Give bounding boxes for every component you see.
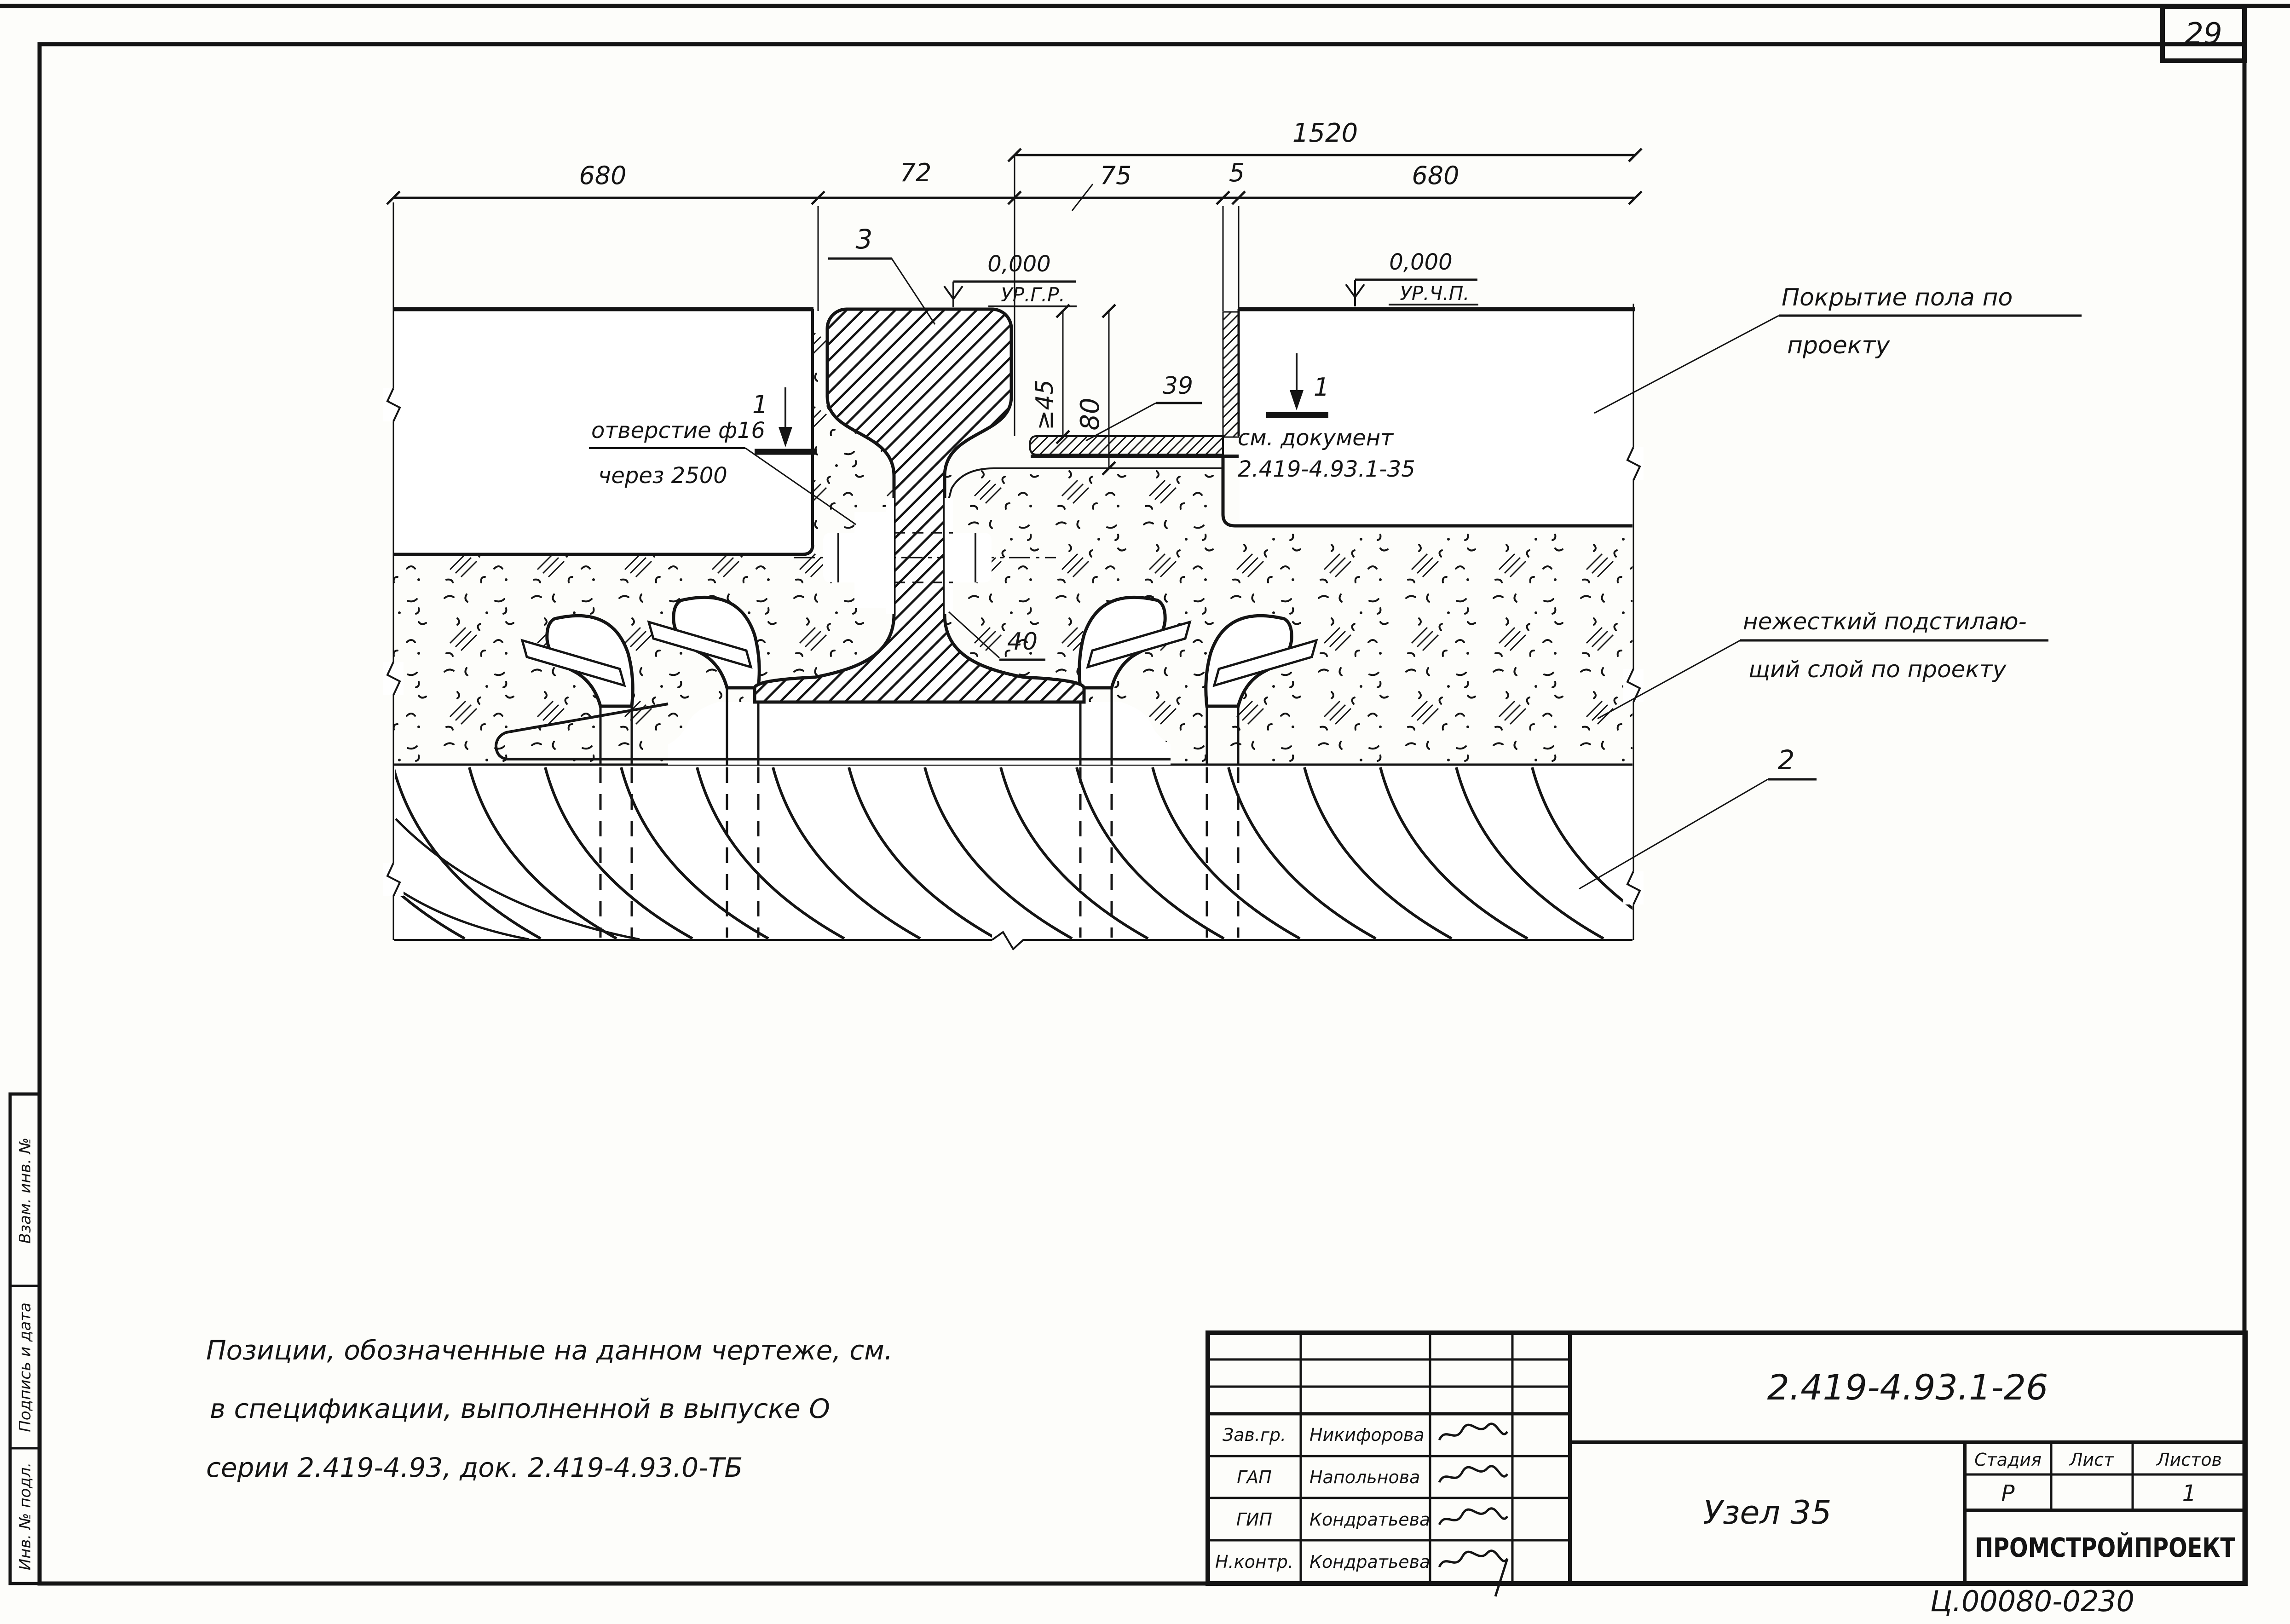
level-mark-floor: 0,000 УР.Ч.П. bbox=[1346, 249, 1478, 306]
level-label-right: УР.Ч.П. bbox=[1400, 282, 1469, 305]
note-line-2: в спецификации, выполненной в выпуске О bbox=[210, 1393, 830, 1424]
sheets-value: 1 bbox=[2182, 1480, 2197, 1506]
dim-72: 72 bbox=[900, 158, 932, 187]
floor-cover-text-2: проекту bbox=[1787, 332, 1891, 359]
name-nkontr: Кондратьева bbox=[1309, 1552, 1430, 1572]
role-nkontr: Н.контр. bbox=[1215, 1552, 1293, 1572]
footer-num: 30 bbox=[2098, 1584, 2134, 1618]
pos3-label: 3 bbox=[856, 224, 873, 255]
floor-cover-text-1: Покрытие пола по bbox=[1782, 284, 2013, 311]
angle-plate-39 bbox=[1030, 436, 1223, 455]
level-value-left: 0,000 bbox=[987, 251, 1050, 277]
bolt-washer bbox=[854, 512, 886, 608]
level-label-left: УР.Г.Р. bbox=[1001, 283, 1065, 306]
sheet-top-edge bbox=[0, 4, 2290, 8]
side-label-inv: Инв. № подл. bbox=[16, 1463, 35, 1571]
level-value-right: 0,000 bbox=[1389, 249, 1452, 275]
bolt-nut bbox=[953, 533, 992, 582]
role-zavgr: Зав.гр. bbox=[1223, 1425, 1286, 1445]
side-label-vzam: Взам. инв. № bbox=[16, 1138, 35, 1244]
node-title: Узел 35 bbox=[1703, 1494, 1831, 1532]
name-gip: Кондратьева bbox=[1309, 1509, 1430, 1530]
section-label: 1 bbox=[752, 390, 768, 419]
sheets-header: Листов bbox=[2156, 1450, 2222, 1470]
footer: Ц.00080-02 30 Формат А3 bbox=[1930, 1584, 2134, 1624]
footer-format: Формат А3 bbox=[1979, 1620, 2125, 1624]
drawing-sheet: 29 Взам. инв. № Подпись и дата Инв. № по… bbox=[0, 0, 2290, 1624]
section-label: 1 bbox=[1314, 373, 1329, 402]
callout-floor-cover: Покрытие пола по проекту bbox=[1594, 284, 2082, 413]
doc-text-2: 2.419-4.93.1-35 bbox=[1238, 456, 1415, 482]
name-zavgr: Никифорова bbox=[1309, 1425, 1425, 1445]
doc-number: 2.419-4.93.1-26 bbox=[1767, 1367, 2048, 1408]
note-block: Позиции, обозначенные на данном чертеже,… bbox=[206, 1335, 893, 1483]
dim-680-left: 680 bbox=[579, 161, 626, 190]
underlay-text-2: щий слой по проекту bbox=[1748, 656, 2007, 683]
sheet-header: Лист bbox=[2069, 1450, 2115, 1470]
org-name: ПРОМСТРОЙПРОЕКТ bbox=[1975, 1532, 2235, 1563]
gasket-plate-right bbox=[945, 498, 953, 614]
role-gap: ГАП bbox=[1237, 1467, 1272, 1487]
pos2-label: 2 bbox=[1778, 744, 1795, 776]
stage-value: Р bbox=[2002, 1480, 2015, 1506]
callout-underlay: нежесткий подстилаю- щий слой по проекту bbox=[1598, 608, 2048, 719]
dim-5: 5 bbox=[1229, 158, 1245, 187]
side-label-podpis: Подпись и дата bbox=[16, 1302, 35, 1432]
side-stamp-column: Взам. инв. № Подпись и дата Инв. № подл. bbox=[10, 1094, 40, 1584]
page-number: 29 bbox=[2185, 17, 2222, 51]
pos40-label: 40 bbox=[1007, 628, 1038, 656]
note-line-1: Позиции, обозначенные на данном чертеже,… bbox=[206, 1335, 893, 1366]
wood-sleeper bbox=[317, 765, 1679, 940]
stage-header: Стадия bbox=[1974, 1450, 2042, 1470]
doc-text-1: см. документ bbox=[1238, 425, 1394, 451]
dim-75: 75 bbox=[1100, 161, 1132, 190]
dim-1520: 1520 bbox=[1292, 118, 1358, 148]
hole-text-2: через 2500 bbox=[598, 463, 727, 489]
underlay-text-1: нежесткий подстилаю- bbox=[1743, 608, 2027, 635]
signatures bbox=[1439, 1424, 1507, 1596]
footer-code: Ц.00080-02 bbox=[1930, 1584, 2099, 1618]
dim-80: 80 bbox=[1075, 397, 1105, 430]
title-block: 2.419-4.93.1-26 Узел 35 Стадия Лист Лист… bbox=[1208, 1333, 2245, 1596]
pos39-label: 39 bbox=[1163, 372, 1193, 400]
dim-45: ≥45 bbox=[1031, 380, 1059, 430]
level-mark-rail: 0,000 УР.Г.Р. bbox=[944, 251, 1077, 307]
role-gip: ГИП bbox=[1236, 1509, 1272, 1530]
dim-680-right: 680 bbox=[1412, 161, 1459, 190]
note-line-3: серии 2.419-4.93, док. 2.419-4.93.0-ТБ bbox=[206, 1452, 743, 1483]
gasket-plate-left bbox=[886, 498, 894, 614]
hole-text-1: отверстие ф16 bbox=[591, 418, 765, 443]
name-gap: Напольнова bbox=[1309, 1467, 1420, 1487]
